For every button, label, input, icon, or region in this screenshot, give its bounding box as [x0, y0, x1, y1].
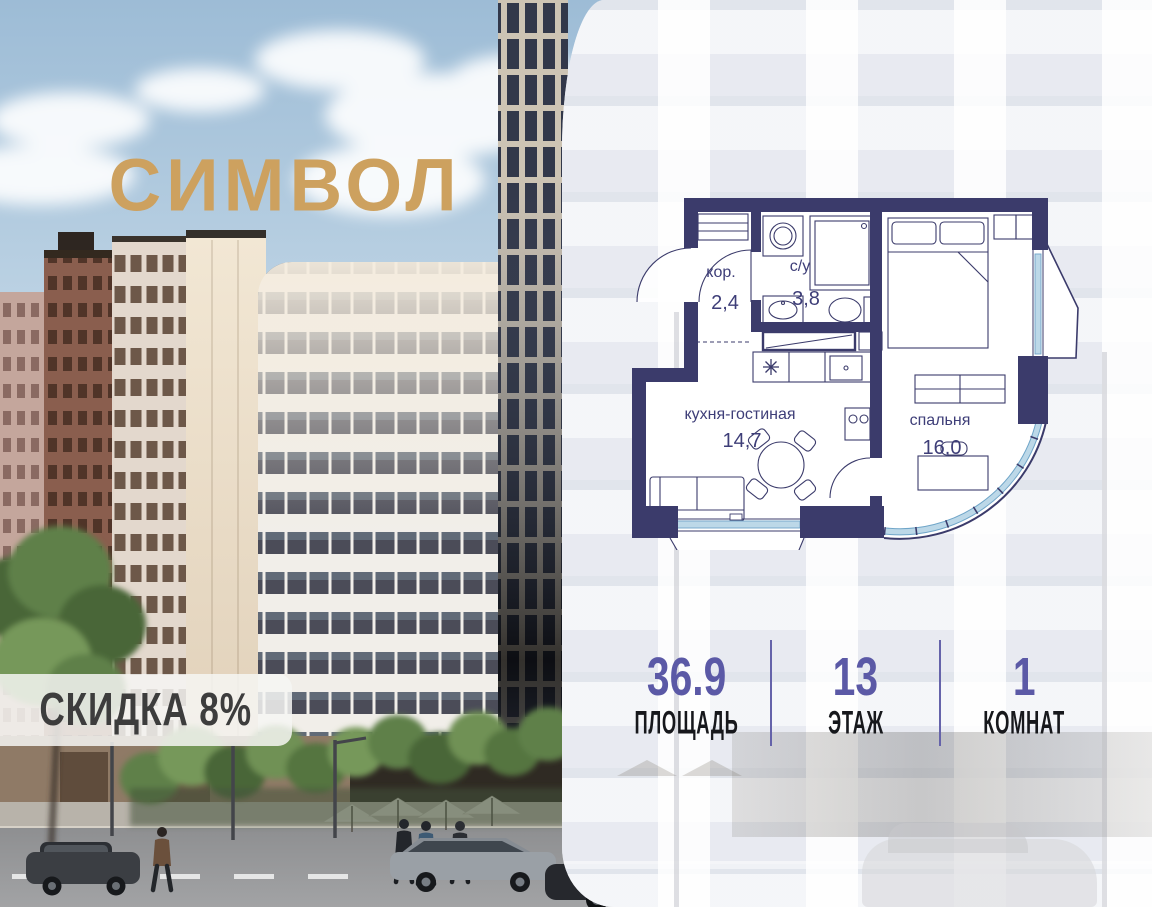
stat-area-label: ПЛОЩАДЬ [610, 708, 763, 739]
faded-street-scene [562, 732, 1152, 907]
stat-area: 36.9 ПЛОЩАДЬ [603, 640, 770, 746]
room-area-corridor: 2,4 [711, 292, 739, 314]
faded-umbrella [682, 760, 742, 776]
faded-storefront [732, 732, 1152, 837]
discount-badge: СКИДКА 8% [0, 674, 292, 746]
faded-car [862, 839, 1097, 907]
room-area-bedroom: 16,0 [923, 437, 962, 459]
faded-pole [1102, 352, 1107, 907]
room-area-kitchen-living: 14,7 [723, 430, 762, 452]
floor-plan: кор. 2,4 с/у 3,8 кухня-гостиная 14,7 спа… [626, 190, 1088, 550]
listing-card[interactable]: СИМВОЛ СКИДКА 8% [0, 0, 1152, 907]
apartment-stats: 36.9 ПЛОЩАДЬ 13 ЭТАЖ 1 КОМНАТ [603, 640, 1108, 746]
room-area-bathroom: 3,8 [792, 288, 820, 310]
stat-floor: 13 ЭТАЖ [770, 640, 939, 746]
stat-rooms-label: КОМНАТ [964, 708, 1084, 739]
stat-rooms: 1 КОМНАТ [939, 640, 1108, 746]
faded-umbrella [617, 760, 677, 776]
stat-floor-value: 13 [827, 647, 884, 706]
brand-logo: СИМВОЛ [70, 143, 500, 228]
room-name-bedroom: спальня [910, 412, 971, 429]
room-name-corridor: кор. [706, 264, 735, 281]
room-name-kitchen-living: кухня-гостиная [684, 406, 795, 423]
discount-badge-label: СКИДКА 8% [40, 684, 253, 737]
info-panel: кор. 2,4 с/у 3,8 кухня-гостиная 14,7 спа… [562, 0, 1152, 907]
stat-area-value: 36.9 [637, 647, 736, 706]
stat-rooms-value: 1 [1010, 647, 1038, 706]
stat-floor-label: ЭТАЖ [815, 708, 897, 739]
room-name-bathroom: с/у [790, 258, 810, 275]
